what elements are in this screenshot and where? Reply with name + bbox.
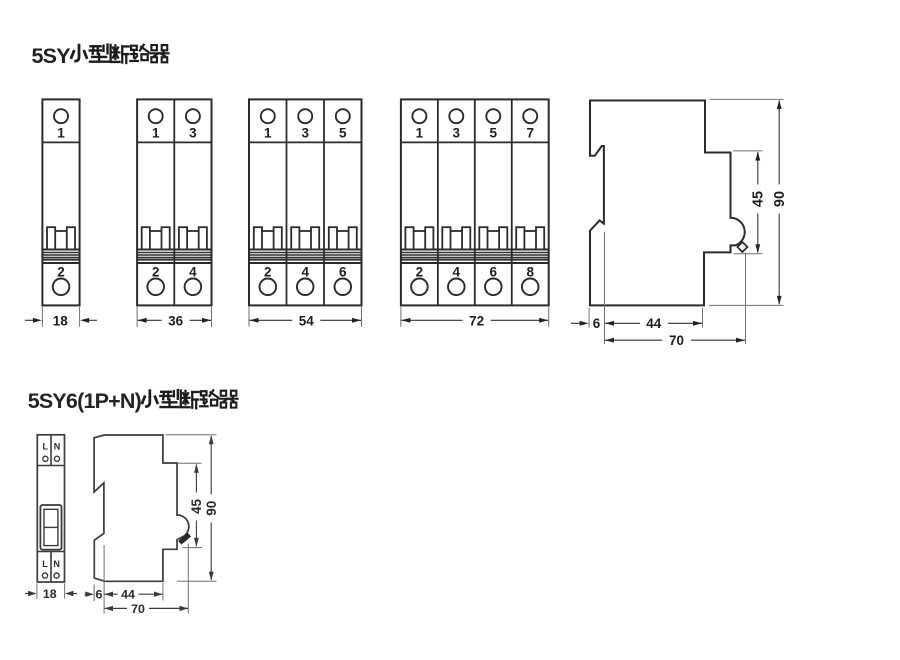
svg-text:6: 6 [490, 264, 498, 279]
svg-text:72: 72 [469, 313, 484, 328]
svg-text:1: 1 [152, 126, 160, 141]
svg-text:N: N [54, 441, 61, 451]
svg-text:4: 4 [453, 264, 461, 279]
svg-text:2: 2 [264, 264, 272, 279]
svg-text:5: 5 [490, 126, 498, 141]
svg-text:36: 36 [168, 313, 184, 328]
svg-text:8: 8 [526, 264, 534, 279]
svg-text:2: 2 [57, 264, 65, 279]
svg-text:2: 2 [152, 264, 160, 279]
svg-text:5: 5 [339, 126, 347, 141]
svg-text:5SY6(1P+N): 5SY6(1P+N) [28, 389, 142, 413]
svg-text:6: 6 [593, 316, 601, 331]
svg-text:45: 45 [750, 191, 766, 207]
svg-text:2: 2 [416, 264, 424, 279]
svg-text:70: 70 [131, 602, 145, 616]
svg-text:3: 3 [453, 126, 461, 141]
svg-text:L: L [42, 441, 48, 451]
svg-text:L: L [42, 559, 48, 569]
svg-text:44: 44 [121, 588, 135, 602]
svg-text:6: 6 [96, 588, 103, 602]
svg-text:4: 4 [301, 264, 309, 279]
svg-text:7: 7 [526, 126, 534, 141]
svg-text:5SY: 5SY [32, 44, 71, 68]
svg-text:N: N [53, 559, 60, 569]
svg-text:3: 3 [301, 126, 309, 141]
svg-text:70: 70 [669, 333, 684, 348]
svg-text:90: 90 [772, 191, 788, 207]
svg-text:1: 1 [264, 126, 272, 141]
svg-text:3: 3 [189, 126, 197, 141]
svg-text:1: 1 [57, 126, 65, 141]
svg-text:44: 44 [646, 316, 662, 331]
svg-text:18: 18 [53, 313, 69, 328]
svg-text:90: 90 [204, 501, 219, 516]
svg-text:18: 18 [43, 587, 57, 601]
svg-text:45: 45 [189, 499, 204, 515]
svg-text:54: 54 [299, 313, 315, 328]
svg-text:6: 6 [339, 264, 347, 279]
svg-text:4: 4 [189, 264, 197, 279]
svg-text:1: 1 [416, 126, 424, 141]
